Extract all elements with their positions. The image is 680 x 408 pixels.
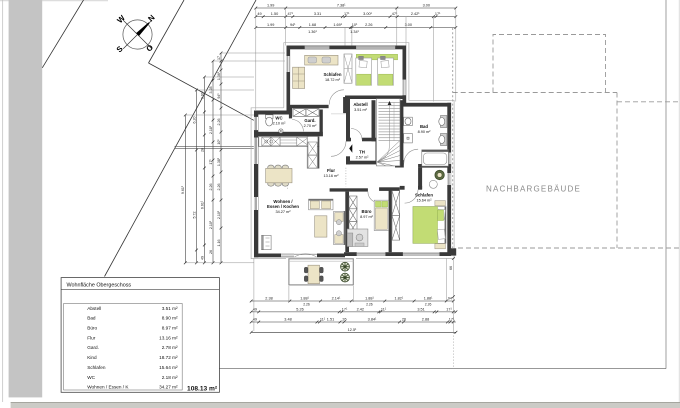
svg-text:11¹: 11¹ bbox=[320, 318, 326, 322]
svg-text:18.72 m²: 18.72 m² bbox=[325, 78, 341, 82]
svg-text:Bad: Bad bbox=[420, 124, 428, 129]
svg-text:Schlafen: Schlafen bbox=[415, 193, 433, 198]
svg-text:3.31: 3.31 bbox=[314, 12, 321, 16]
svg-text:NACHBARGEBÄUDE: NACHBARGEBÄUDE bbox=[486, 185, 581, 194]
svg-text:2.88: 2.88 bbox=[422, 318, 429, 322]
svg-text:34.27 m²: 34.27 m² bbox=[159, 385, 178, 390]
svg-text:Kind: Kind bbox=[87, 355, 97, 360]
svg-text:Wohnen / Essen / K: Wohnen / Essen / K bbox=[87, 385, 129, 390]
svg-text:8.97 m²: 8.97 m² bbox=[360, 215, 374, 219]
svg-text:1.88¹: 1.88¹ bbox=[424, 297, 433, 301]
svg-text:3.51 m²: 3.51 m² bbox=[162, 306, 178, 311]
svg-text:2.18 m²: 2.18 m² bbox=[162, 375, 178, 380]
svg-text:94¹: 94¹ bbox=[217, 93, 221, 99]
svg-text:1.88¹: 1.88¹ bbox=[365, 297, 374, 301]
svg-text:26: 26 bbox=[209, 250, 213, 254]
svg-text:66: 66 bbox=[449, 266, 453, 270]
svg-text:17¹: 17¹ bbox=[342, 308, 348, 312]
svg-text:2.26: 2.26 bbox=[217, 119, 221, 126]
svg-text:2.18¹: 2.18¹ bbox=[209, 125, 213, 134]
svg-text:49: 49 bbox=[253, 308, 257, 312]
svg-text:10¹: 10¹ bbox=[352, 23, 358, 27]
svg-text:2.42: 2.42 bbox=[357, 308, 364, 312]
svg-text:8.97 m²: 8.97 m² bbox=[162, 326, 178, 331]
svg-text:47¹: 47¹ bbox=[287, 12, 293, 16]
svg-text:15.64 m²: 15.64 m² bbox=[417, 198, 433, 202]
svg-text:6.20: 6.20 bbox=[192, 117, 196, 124]
svg-text:5.26: 5.26 bbox=[296, 308, 303, 312]
svg-text:6.61¹: 6.61¹ bbox=[200, 200, 204, 209]
svg-text:17¹: 17¹ bbox=[446, 308, 452, 312]
svg-text:1.88¹: 1.88¹ bbox=[300, 297, 309, 301]
svg-text:1.50: 1.50 bbox=[271, 12, 278, 16]
svg-text:12.5¹: 12.5¹ bbox=[348, 328, 357, 332]
svg-text:Büro: Büro bbox=[361, 209, 371, 214]
svg-text:WC: WC bbox=[87, 375, 95, 380]
svg-text:17¹: 17¹ bbox=[344, 12, 350, 16]
svg-text:18.72 m²: 18.72 m² bbox=[159, 355, 178, 360]
svg-text:34.27 m²: 34.27 m² bbox=[276, 210, 292, 214]
svg-text:11¹: 11¹ bbox=[381, 308, 387, 312]
svg-text:1.16: 1.16 bbox=[217, 240, 221, 247]
svg-text:Essen / Kochen: Essen / Kochen bbox=[267, 204, 299, 209]
svg-text:13.16 m²: 13.16 m² bbox=[324, 174, 340, 178]
svg-text:Büro: Büro bbox=[87, 326, 97, 331]
svg-text:2.10 m²: 2.10 m² bbox=[273, 121, 287, 125]
svg-text:3.00¹: 3.00¹ bbox=[363, 12, 372, 16]
svg-text:2.26: 2.26 bbox=[217, 184, 221, 191]
svg-text:Bad: Bad bbox=[87, 316, 96, 321]
svg-text:7.38¹: 7.38¹ bbox=[337, 4, 346, 8]
svg-text:3.00: 3.00 bbox=[423, 4, 430, 8]
svg-text:15.64 m²: 15.64 m² bbox=[159, 365, 178, 370]
svg-text:108.13 m²: 108.13 m² bbox=[187, 386, 218, 393]
svg-text:1.69¹: 1.69¹ bbox=[333, 23, 342, 27]
svg-text:26: 26 bbox=[402, 318, 406, 322]
svg-text:2.42¹: 2.42¹ bbox=[411, 12, 420, 16]
svg-text:2.26: 2.26 bbox=[303, 303, 310, 307]
svg-text:2.10¹: 2.10¹ bbox=[209, 220, 213, 229]
svg-text:3.48: 3.48 bbox=[284, 318, 291, 322]
svg-text:1.99: 1.99 bbox=[267, 23, 274, 27]
svg-text:3.51: 3.51 bbox=[417, 308, 424, 312]
svg-text:47¹: 47¹ bbox=[392, 12, 398, 16]
svg-text:2.26: 2.26 bbox=[209, 184, 213, 191]
svg-text:17¹: 17¹ bbox=[209, 159, 213, 165]
svg-text:49: 49 bbox=[200, 256, 204, 260]
svg-text:1.82¹: 1.82¹ bbox=[394, 297, 403, 301]
svg-text:Abstell: Abstell bbox=[353, 102, 367, 107]
svg-text:1.38¹: 1.38¹ bbox=[217, 157, 221, 166]
svg-text:WC: WC bbox=[275, 116, 282, 121]
svg-text:2.10¹: 2.10¹ bbox=[217, 210, 221, 219]
svg-text:Gard.: Gard. bbox=[304, 118, 315, 123]
svg-text:17¹: 17¹ bbox=[435, 12, 441, 16]
svg-text:2.78 m²: 2.78 m² bbox=[162, 345, 178, 350]
svg-text:Schlafen: Schlafen bbox=[324, 72, 342, 77]
svg-text:Flur: Flur bbox=[87, 335, 96, 340]
svg-text:94¹: 94¹ bbox=[290, 23, 296, 27]
svg-text:Gard.: Gard. bbox=[87, 345, 99, 350]
svg-text:2.26: 2.26 bbox=[365, 23, 372, 27]
svg-text:Wohnfläche Obergeschoss: Wohnfläche Obergeschoss bbox=[67, 282, 132, 288]
svg-text:94: 94 bbox=[448, 297, 452, 301]
svg-text:2.57 m²: 2.57 m² bbox=[356, 155, 370, 159]
svg-text:1.36¹: 1.36¹ bbox=[217, 71, 221, 80]
svg-text:28: 28 bbox=[200, 148, 204, 152]
svg-text:1.68: 1.68 bbox=[309, 23, 316, 27]
svg-text:2.38: 2.38 bbox=[265, 297, 272, 301]
svg-text:8.90 m²: 8.90 m² bbox=[418, 130, 432, 134]
svg-text:1.34¹: 1.34¹ bbox=[350, 30, 359, 34]
svg-text:Abstell: Abstell bbox=[87, 306, 101, 311]
svg-text:9.61¹: 9.61¹ bbox=[181, 185, 185, 194]
svg-text:8.90 m²: 8.90 m² bbox=[162, 316, 178, 321]
svg-text:10¹: 10¹ bbox=[217, 139, 221, 145]
svg-text:5.72: 5.72 bbox=[192, 212, 196, 219]
svg-text:17¹: 17¹ bbox=[449, 318, 455, 322]
svg-text:3.61¹: 3.61¹ bbox=[200, 90, 204, 99]
svg-text:17: 17 bbox=[217, 56, 221, 60]
svg-text:1.99: 1.99 bbox=[267, 4, 274, 8]
svg-text:2.26: 2.26 bbox=[425, 303, 432, 307]
svg-text:1.36¹: 1.36¹ bbox=[308, 30, 317, 34]
svg-text:49: 49 bbox=[253, 318, 257, 322]
svg-text:1.51: 1.51 bbox=[327, 318, 334, 322]
svg-text:13.16 m²: 13.16 m² bbox=[159, 335, 178, 340]
svg-text:26: 26 bbox=[342, 318, 346, 322]
svg-text:Flur: Flur bbox=[327, 168, 335, 173]
svg-text:Schlafen: Schlafen bbox=[87, 365, 106, 370]
svg-text:2.70 m²: 2.70 m² bbox=[304, 124, 318, 128]
svg-text:3.51 m²: 3.51 m² bbox=[354, 108, 368, 112]
svg-text:3.00: 3.00 bbox=[405, 23, 412, 27]
svg-text:3.84¹: 3.84¹ bbox=[368, 318, 377, 322]
svg-text:TH: TH bbox=[359, 150, 365, 155]
svg-text:2.26: 2.26 bbox=[366, 303, 373, 307]
svg-text:49: 49 bbox=[257, 12, 261, 16]
svg-text:2.14¹: 2.14¹ bbox=[332, 297, 341, 301]
